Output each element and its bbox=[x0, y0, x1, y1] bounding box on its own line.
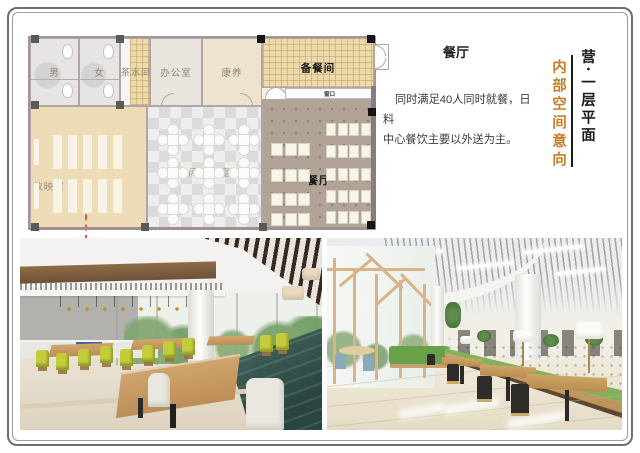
table-cluster bbox=[158, 125, 188, 155]
column-marker bbox=[31, 223, 39, 231]
room-office: 办公室 bbox=[150, 38, 202, 106]
door-arc-icon bbox=[240, 93, 253, 106]
table-leg bbox=[170, 404, 176, 428]
room-label: 康养 bbox=[203, 65, 261, 79]
dining-table bbox=[271, 169, 283, 182]
description-line-1: 同时满足40人同时就餐，日料 bbox=[383, 90, 531, 130]
seat-row bbox=[53, 179, 62, 213]
dining-table bbox=[361, 168, 371, 181]
dining-table bbox=[271, 213, 283, 226]
caption-first-floor-plan: 营·一层平面 bbox=[577, 49, 598, 145]
table-leg bbox=[565, 390, 569, 421]
column-marker bbox=[368, 108, 376, 116]
serving-window-counter: 窗口 bbox=[285, 88, 374, 99]
stall-wall bbox=[80, 79, 119, 80]
double-door-icon bbox=[265, 87, 276, 99]
toilet-icon bbox=[103, 44, 114, 59]
door-arc-icon bbox=[161, 93, 174, 106]
table-leg bbox=[506, 377, 510, 401]
seat-row bbox=[113, 135, 122, 169]
dining-table bbox=[326, 123, 336, 136]
caption-divider-line bbox=[571, 55, 573, 167]
column-marker bbox=[31, 35, 39, 43]
dining-table bbox=[338, 123, 348, 136]
room-label: 备餐间 bbox=[263, 60, 373, 75]
dining-table bbox=[326, 168, 336, 181]
section-description: 同时满足40人同时就餐，日料 中心餐饮主要以外送为主。 bbox=[383, 90, 531, 150]
table-cluster bbox=[158, 158, 188, 188]
dining-table bbox=[285, 213, 297, 226]
door-arc-icon bbox=[375, 58, 386, 69]
table-cluster bbox=[229, 125, 259, 155]
chartreuse-chair bbox=[260, 335, 273, 352]
dining-table bbox=[361, 145, 371, 158]
table-leg bbox=[460, 366, 464, 384]
chartreuse-chair bbox=[276, 333, 289, 350]
dining-table bbox=[298, 193, 310, 206]
chartreuse-chair bbox=[36, 350, 49, 367]
white-chair bbox=[148, 373, 170, 407]
dining-table bbox=[285, 193, 297, 206]
section-title: 餐厅 bbox=[420, 42, 492, 61]
table-cluster bbox=[194, 125, 224, 155]
column-marker bbox=[116, 101, 124, 109]
column-marker bbox=[367, 221, 375, 229]
dining-table bbox=[338, 168, 348, 181]
seat-row bbox=[68, 135, 77, 169]
table-leg bbox=[138, 398, 143, 418]
table-cluster bbox=[158, 194, 188, 224]
room-label: 男 bbox=[31, 65, 78, 79]
column-marker bbox=[367, 35, 375, 43]
column-marker bbox=[259, 223, 267, 231]
wood-table bbox=[131, 338, 188, 350]
dining-table bbox=[326, 145, 336, 158]
room-label: 办公室 bbox=[151, 65, 201, 79]
wood-table-front bbox=[116, 354, 240, 418]
table-cluster bbox=[229, 194, 259, 224]
dining-table bbox=[298, 213, 310, 226]
furniture-layer bbox=[20, 238, 322, 430]
exterior-wall bbox=[30, 227, 374, 230]
toilet-icon bbox=[62, 83, 73, 98]
dining-table bbox=[338, 211, 348, 224]
room-label: 女 bbox=[80, 65, 119, 79]
dining-table bbox=[326, 211, 336, 224]
chartreuse-chair bbox=[182, 338, 195, 355]
door-arc-icon bbox=[375, 45, 386, 56]
white-chair bbox=[246, 378, 284, 430]
dining-table bbox=[326, 190, 336, 203]
room-projection: 放映室 bbox=[30, 106, 147, 228]
caption-interior-space-intent: 内部空间意向 bbox=[548, 59, 569, 170]
stall-wall bbox=[31, 79, 78, 80]
room-label: 窗口 bbox=[286, 90, 373, 98]
dining-table bbox=[285, 169, 297, 182]
toilet-icon bbox=[103, 83, 114, 98]
description-line-2: 中心餐饮主要以外送为主。 bbox=[383, 130, 531, 150]
seat-row bbox=[83, 179, 92, 213]
seat-row bbox=[68, 179, 77, 213]
column-marker bbox=[257, 35, 265, 43]
chartreuse-chair bbox=[56, 353, 69, 370]
seat-row bbox=[34, 183, 39, 209]
dining-table bbox=[271, 143, 283, 156]
furniture-layer bbox=[327, 238, 622, 430]
dining-table bbox=[361, 123, 371, 136]
chartreuse-chair bbox=[100, 346, 113, 363]
dining-table bbox=[298, 143, 310, 156]
table-cluster bbox=[194, 158, 224, 188]
seat-row bbox=[34, 139, 39, 165]
dining-table bbox=[349, 211, 359, 224]
room-wellness: 康养 bbox=[202, 38, 262, 106]
exterior-door bbox=[374, 44, 389, 70]
seat-row bbox=[83, 135, 92, 169]
seat-row bbox=[53, 135, 62, 169]
dining-table bbox=[349, 145, 359, 158]
black-chair bbox=[447, 364, 459, 384]
black-chair bbox=[477, 376, 492, 402]
room-prep: 备餐间 bbox=[262, 38, 374, 88]
photo-dining-interior-left bbox=[20, 238, 322, 430]
table-cluster bbox=[194, 194, 224, 224]
dining-table bbox=[298, 169, 310, 182]
seat-row bbox=[113, 179, 122, 213]
seat-row bbox=[98, 135, 107, 169]
room-label: 茶水间 bbox=[121, 66, 149, 79]
dining-table bbox=[349, 168, 359, 181]
column-marker bbox=[116, 35, 124, 43]
dining-table bbox=[361, 190, 371, 203]
dining-table bbox=[285, 143, 297, 156]
chartreuse-chair bbox=[142, 345, 155, 362]
column-marker bbox=[31, 101, 39, 109]
floor-plan: 男 女 茶水间 办公室 康养 备餐间 窗口 bbox=[28, 36, 376, 230]
chartreuse-chair bbox=[78, 349, 91, 366]
room-dining-hall: 餐厅 bbox=[262, 99, 374, 228]
chartreuse-chair bbox=[120, 349, 133, 366]
dining-table bbox=[271, 193, 283, 206]
room-tea-room: 茶水间 bbox=[120, 38, 150, 106]
slide: 男 女 茶水间 办公室 康养 备餐间 窗口 bbox=[0, 0, 640, 453]
photo-dining-interior-right bbox=[327, 238, 622, 430]
black-chair bbox=[427, 354, 435, 368]
room-chat-lounge: 休闲聊天室 bbox=[147, 106, 262, 228]
dining-table bbox=[349, 190, 359, 203]
room-womens-restroom: 女 bbox=[79, 38, 120, 106]
seat-row bbox=[98, 179, 107, 213]
wood-table bbox=[207, 336, 256, 346]
dining-table bbox=[338, 190, 348, 203]
dining-table bbox=[349, 123, 359, 136]
column-marker bbox=[141, 223, 149, 231]
dining-table bbox=[338, 145, 348, 158]
room-mens-restroom: 男 bbox=[30, 38, 79, 106]
black-chair bbox=[511, 384, 529, 416]
table-cluster bbox=[229, 158, 259, 188]
chartreuse-chair bbox=[163, 341, 176, 358]
toilet-icon bbox=[62, 44, 73, 59]
